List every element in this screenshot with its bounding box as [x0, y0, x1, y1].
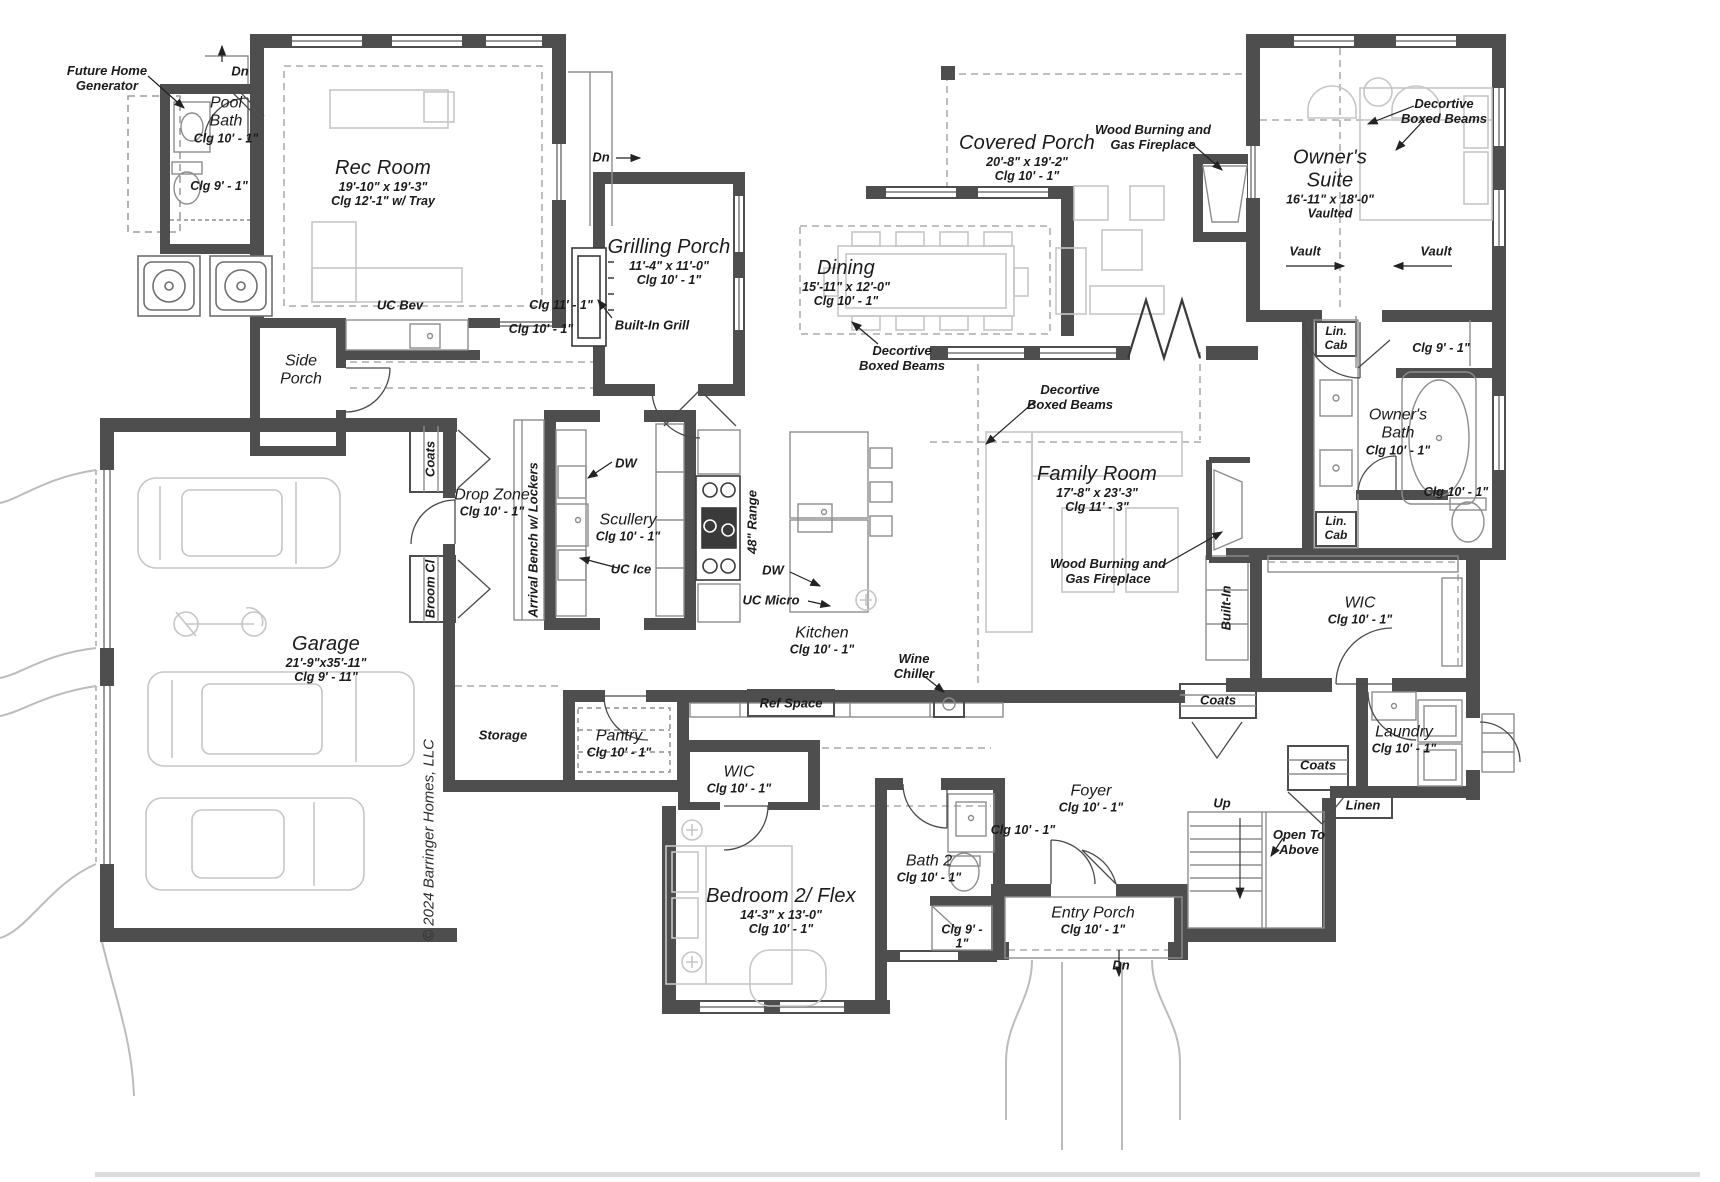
pantry-name: Pantry — [596, 728, 642, 746]
dining-name: Dining — [817, 257, 875, 280]
hall-clg-label: Clg 10' - 1" — [991, 823, 1055, 837]
future-generator-label: Future Home Generator — [59, 64, 155, 94]
breezeway-clg10-label: Clg 10' - 1" — [509, 322, 573, 336]
room-dining: Dining 15'-11" x 12'-0" Clg 10' - 1" — [802, 257, 890, 309]
wic2-clg: Clg 10' - 1" — [707, 782, 771, 796]
kitchen-clg: Clg 10' - 1" — [790, 643, 854, 657]
owners-wic-name: WIC — [1344, 595, 1375, 613]
entry-porch-name: Entry Porch — [1051, 905, 1135, 923]
uc-ice-label: UC Ice — [611, 563, 651, 578]
room-wic2: WIC Clg 10' - 1" — [707, 764, 771, 797]
storage-label: Storage — [479, 729, 527, 744]
dining-clg: Clg 10' - 1" — [814, 295, 878, 309]
ref-space-label: Ref Space — [760, 697, 823, 712]
dw-kitchen-label: DW — [762, 564, 784, 579]
coats-foyer-label: Coats — [1200, 694, 1236, 709]
side-porch-name: Side Porch — [273, 353, 329, 390]
rec-room-clg: Clg 12'-1" w/ Tray — [331, 195, 435, 209]
kitchen-name: Kitchen — [795, 625, 848, 643]
vault-left-label: Vault — [1289, 245, 1320, 260]
bedroom2-clg: Clg 10' - 1" — [749, 923, 813, 937]
foyer-name: Foyer — [1071, 783, 1112, 801]
family-name: Family Room — [1037, 463, 1157, 486]
floorplan-drawing — [0, 0, 1720, 1182]
coats-garage-label: Coats — [424, 441, 439, 477]
room-laundry: Laundry Clg 10' - 1" — [1372, 724, 1436, 757]
grilling-porch-dims: 11'-4" x 11'-0" — [629, 259, 709, 273]
range-label: 48" Range — [746, 490, 761, 554]
room-pool-bath: Pool Bath Clg 10' - 1" — [194, 94, 258, 145]
pool-bath-name: Pool Bath — [200, 94, 252, 131]
room-pantry: Pantry Clg 10' - 1" — [587, 728, 651, 761]
entry-porch-clg: Clg 10' - 1" — [1061, 923, 1125, 937]
drop-zone-name: Drop Zone — [454, 487, 530, 505]
floor-plan: Rec Room 19'-10" x 19'-3" Clg 12'-1" w/ … — [0, 0, 1720, 1182]
decortive-beams-dining-label: Decortive Boxed Beams — [855, 344, 950, 374]
wood-burning-family-label: Wood Burning and Gas Fireplace — [1038, 557, 1178, 587]
owners-wc-clg: Clg 10' - 1" — [1424, 485, 1488, 499]
covered-porch-dims: 20'-8" x 19'-2" — [986, 155, 1068, 169]
foyer-clg: Clg 10' - 1" — [1059, 801, 1123, 815]
room-owners-bath: Owner's Bath Clg 10' - 1" — [1358, 406, 1438, 457]
decortive-beams-family-label: Decortive Boxed Beams — [1023, 383, 1118, 413]
laundry-name: Laundry — [1375, 724, 1433, 742]
wood-burning-porch-label: Wood Burning and Gas Fireplace — [1083, 123, 1223, 153]
owners-bath-name: Owner's Bath — [1358, 406, 1438, 443]
room-bedroom2: Bedroom 2/ Flex 14'-3" x 13'-0" Clg 10' … — [706, 885, 856, 937]
room-side-porch: Side Porch — [273, 353, 329, 390]
bath2-clg: Clg 10' - 1" — [897, 871, 961, 885]
family-dims: 17'-8" x 23'-3" — [1056, 486, 1138, 500]
room-rec-room: Rec Room 19'-10" x 19'-3" Clg 12'-1" w/ … — [331, 157, 435, 209]
owners-wic-clg: Clg 10' - 1" — [1328, 613, 1392, 627]
grilling-porch-name: Grilling Porch — [608, 236, 731, 259]
lin-cab-top-label: Lin. Cab — [1318, 325, 1354, 353]
room-kitchen: Kitchen Clg 10' - 1" — [790, 625, 854, 658]
room-owners-suite: Owner's Suite 16'-11" x 18'-0" Vaulted — [1278, 147, 1382, 222]
room-entry-porch: Entry Porch Clg 10' - 1" — [1051, 905, 1135, 938]
wine-chiller-label: Wine Chiller — [886, 652, 942, 682]
vault-right-label: Vault — [1420, 245, 1451, 260]
owners-bath-clg: Clg 10' - 1" — [1366, 443, 1430, 457]
bath2-shower-clg: Clg 9' - 1" — [940, 923, 984, 952]
covered-porch-name: Covered Porch — [959, 132, 1095, 155]
scullery-name: Scullery — [600, 512, 657, 530]
garage-clg: Clg 9' - 11" — [294, 671, 358, 685]
laundry-clg: Clg 10' - 1" — [1372, 742, 1436, 756]
bedroom2-dims: 14'-3" x 13'-0" — [740, 908, 822, 922]
grilling-porch-clg: Clg 10' - 1" — [637, 274, 701, 288]
covered-porch-clg: Clg 10' - 1" — [995, 170, 1059, 184]
garage-name: Garage — [292, 633, 360, 656]
owners-suite-dims: 16'-11" x 18'-0" — [1286, 193, 1374, 207]
room-foyer: Foyer Clg 10' - 1" — [1059, 783, 1123, 816]
open-to-above-label: Open To Above — [1259, 828, 1339, 858]
broom-closet-label: Broom Cl — [424, 560, 439, 619]
scullery-clg: Clg 10' - 1" — [596, 530, 660, 544]
bedroom2-name: Bedroom 2/ Flex — [706, 885, 856, 908]
owners-suite-name: Owner's Suite — [1278, 147, 1382, 193]
dn-rec-label: Dn — [592, 151, 609, 166]
owners-suite-vaulted: Vaulted — [1308, 207, 1353, 221]
wic2-name: WIC — [723, 764, 754, 782]
room-family: Family Room 17'-8" x 23'-3" Clg 11' - 3" — [1037, 463, 1157, 515]
uc-bev-label: UC Bev — [377, 299, 423, 314]
arrival-bench-label: Arrival Bench w/ Lockers — [527, 462, 542, 617]
room-grilling-porch: Grilling Porch 11'-4" x 11'-0" Clg 10' -… — [608, 236, 731, 288]
built-in-grill-label: Built-In Grill — [615, 319, 689, 334]
family-clg: Clg 11' - 3" — [1065, 501, 1129, 515]
room-bath2: Bath 2 Clg 10' - 1" — [897, 853, 961, 886]
breezeway-clg11-label: Clg 11' - 1" — [529, 298, 593, 312]
room-drop-zone: Drop Zone Clg 10' - 1" — [454, 487, 530, 520]
pool-bath-clg: Clg 10' - 1" — [194, 131, 258, 145]
dn-pool-label: Dn — [231, 65, 248, 80]
dining-dims: 15'-11" x 12'-0" — [802, 280, 890, 294]
lin-cab-bottom-label: Lin. Cab — [1318, 515, 1354, 543]
dw-scullery-label: DW — [615, 457, 637, 472]
pantry-clg: Clg 10' - 1" — [587, 746, 651, 760]
built-in-label: Built-In — [1220, 586, 1235, 631]
owners-shower-clg: Clg 9' - 1" — [1412, 341, 1470, 355]
decortive-beams-suite-label: Decortive Boxed Beams — [1394, 97, 1494, 127]
room-owners-wic: WIC Clg 10' - 1" — [1328, 595, 1392, 628]
copyright-label: © 2024 Barringer Homes, LLC — [420, 739, 437, 941]
rec-room-dims: 19'-10" x 19'-3" — [339, 180, 428, 194]
linen-label: Linen — [1346, 799, 1381, 814]
pool-bath-clg2: Clg 9' - 1" — [190, 179, 248, 193]
room-garage: Garage 21'-9"x35'-11" Clg 9' - 11" — [286, 633, 367, 685]
room-scullery: Scullery Clg 10' - 1" — [596, 512, 660, 545]
up-label: Up — [1213, 797, 1230, 812]
dn-entry-label: Dn — [1112, 959, 1129, 974]
uc-micro-label: UC Micro — [742, 594, 799, 609]
bath2-name: Bath 2 — [906, 853, 952, 871]
drop-zone-clg: Clg 10' - 1" — [460, 505, 524, 519]
rec-room-name: Rec Room — [335, 157, 431, 180]
room-covered-porch: Covered Porch 20'-8" x 19'-2" Clg 10' - … — [959, 132, 1095, 184]
coats-stairs-label: Coats — [1300, 759, 1336, 774]
garage-dims: 21'-9"x35'-11" — [286, 656, 367, 670]
